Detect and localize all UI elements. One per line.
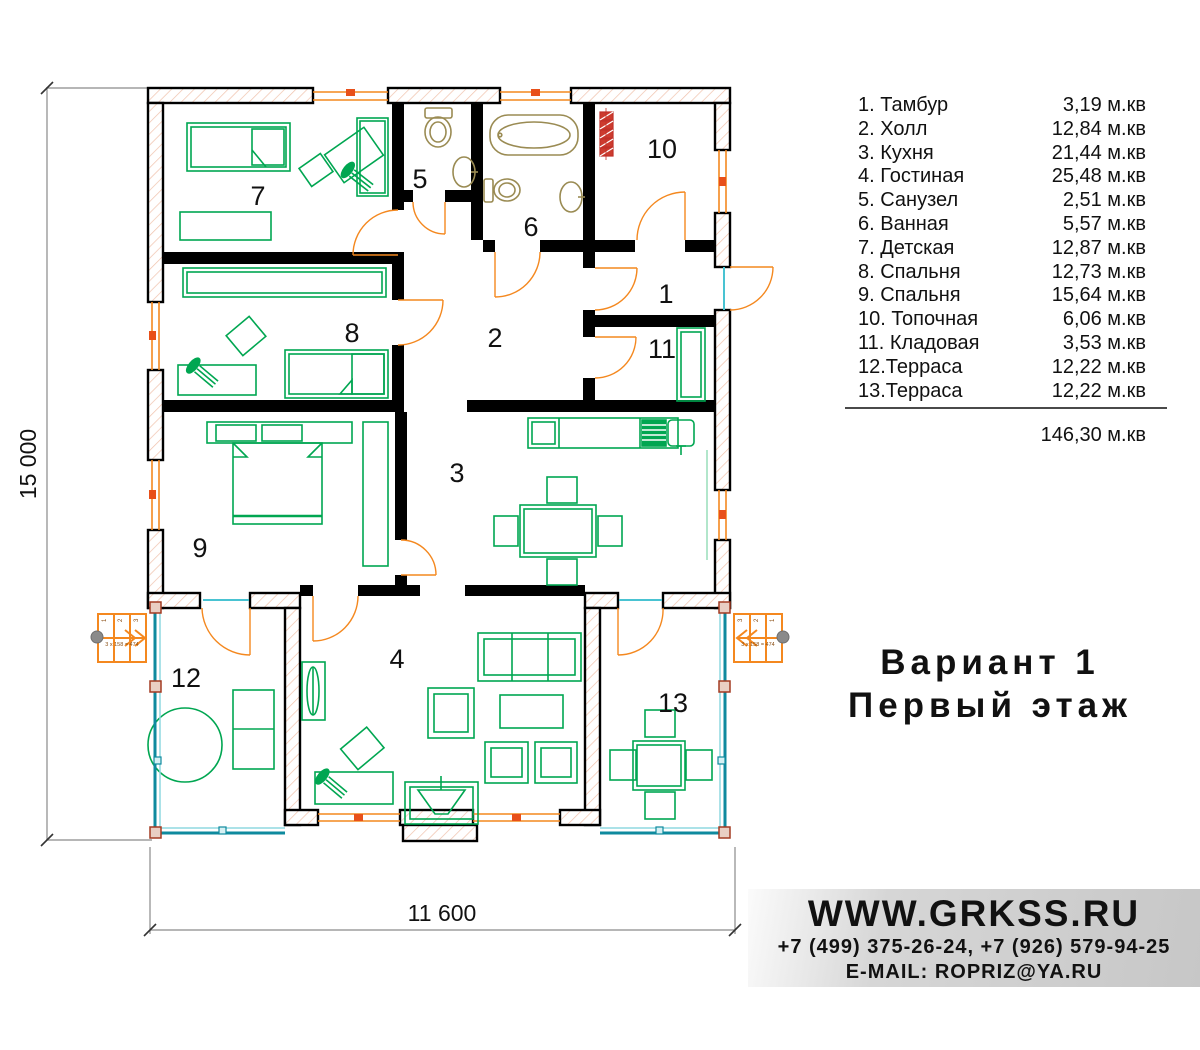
terrace-railings bbox=[150, 602, 730, 838]
room-name: 6. Ванная bbox=[858, 213, 949, 237]
room-name: 8. Спальня bbox=[858, 261, 961, 285]
website-text: WWW.GRKSS.RU bbox=[808, 893, 1140, 935]
stair-step: 2 bbox=[754, 618, 760, 622]
stove-icon bbox=[642, 420, 666, 446]
legend-row: 6. Ванная5,57 м.кв bbox=[858, 213, 1146, 237]
terrace13-furniture bbox=[610, 710, 712, 819]
room-area: 12,84 м.кв bbox=[1052, 118, 1146, 142]
room-area: 2,51 м.кв bbox=[1063, 189, 1146, 213]
room-name: 13.Терраса bbox=[858, 380, 963, 404]
variant-title-line1: Вариант 1 bbox=[790, 641, 1190, 684]
room-number-5: 5 bbox=[412, 164, 427, 194]
interior-walls bbox=[163, 103, 715, 596]
stair-step: 2 bbox=[118, 618, 124, 622]
railing-posts bbox=[150, 602, 730, 838]
room-area: 12,22 м.кв bbox=[1052, 380, 1146, 404]
room-area: 5,57 м.кв bbox=[1063, 213, 1146, 237]
bathtub-icon bbox=[490, 115, 578, 155]
legend-row: 1. Тамбур3,19 м.кв bbox=[858, 94, 1146, 118]
room-number-7: 7 bbox=[250, 181, 265, 211]
toilet-icon bbox=[484, 179, 493, 202]
stair-step: 1 bbox=[770, 618, 776, 622]
exterior-walls bbox=[148, 88, 730, 841]
variant-title-line2: Первый этаж bbox=[790, 684, 1190, 727]
room11-furniture bbox=[677, 328, 705, 401]
legend-row: 9. Спальня15,64 м.кв bbox=[858, 284, 1146, 308]
stair-step: 3 bbox=[738, 618, 744, 622]
variant-title: Вариант 1 Первый этаж bbox=[790, 641, 1190, 727]
room-number-9: 9 bbox=[192, 533, 207, 563]
legend-row: 12.Терраса12,22 м.кв bbox=[858, 356, 1146, 380]
email-text: E-MAIL: ROPRIZ@YA.RU bbox=[846, 960, 1103, 984]
sofa-icon bbox=[478, 633, 581, 681]
stair-note-left: 3 x 158 = 474 bbox=[105, 642, 139, 648]
room-number-1: 1 bbox=[658, 279, 673, 309]
room7-furniture bbox=[180, 118, 388, 240]
room-number-8: 8 bbox=[344, 318, 359, 348]
legend-row: 13.Терраса12,22 м.кв bbox=[858, 380, 1146, 404]
stair-step: 1 bbox=[102, 618, 108, 622]
legend-row: 5. Санузел2,51 м.кв bbox=[858, 189, 1146, 213]
room-area: 25,48 м.кв bbox=[1052, 165, 1146, 189]
legend-divider bbox=[845, 407, 1167, 409]
room-number-6: 6 bbox=[523, 212, 538, 242]
legend-row: 2. Холл12,84 м.кв bbox=[858, 118, 1146, 142]
stair-step: 3 bbox=[134, 618, 140, 622]
dimension-width-label: 11 600 bbox=[408, 900, 477, 926]
room-name: 2. Холл bbox=[858, 118, 927, 142]
legend-row: 8. Спальня12,73 м.кв bbox=[858, 261, 1146, 285]
room-number-2: 2 bbox=[487, 323, 502, 353]
legend-row: 10. Топочная6,06 м.кв bbox=[858, 308, 1146, 332]
kitchen-furniture bbox=[494, 418, 707, 585]
legend-row: 4. Гостиная25,48 м.кв bbox=[858, 165, 1146, 189]
room-name: 9. Спальня bbox=[858, 284, 961, 308]
room-name: 3. Кухня bbox=[858, 142, 934, 166]
boiler-icon bbox=[600, 108, 613, 160]
room-area: 12,22 м.кв bbox=[1052, 356, 1146, 380]
room-name: 7. Детская bbox=[858, 237, 954, 261]
room-name: 10. Топочная bbox=[858, 308, 978, 332]
room4-furniture bbox=[302, 633, 581, 824]
room-number-3: 3 bbox=[449, 458, 464, 488]
room-number-4: 4 bbox=[389, 644, 404, 674]
room-name: 1. Тамбур bbox=[858, 94, 948, 118]
room-area: 3,19 м.кв bbox=[1063, 94, 1146, 118]
room-name: 12.Терраса bbox=[858, 356, 963, 380]
kitchen-sink-icon bbox=[668, 420, 694, 446]
computer-icon bbox=[184, 356, 221, 391]
dimension-height-label: 15 000 bbox=[15, 429, 41, 499]
room-name: 5. Санузел bbox=[858, 189, 958, 213]
room9-furniture bbox=[207, 422, 388, 566]
total-area: 146,30 м.кв bbox=[858, 424, 1146, 447]
room-area: 6,06 м.кв bbox=[1063, 308, 1146, 332]
stair-note-right: 3 x 158 = 474 bbox=[741, 642, 775, 648]
legend-row: 7. Детская12,87 м.кв bbox=[858, 237, 1146, 261]
room-number-11: 11 bbox=[648, 334, 676, 364]
room-name: 11. Кладовая bbox=[858, 332, 979, 356]
room-area: 12,73 м.кв bbox=[1052, 261, 1146, 285]
legend-row: 11. Кладовая3,53 м.кв bbox=[858, 332, 1146, 356]
legend-row: 3. Кухня21,44 м.кв bbox=[858, 142, 1146, 166]
room-legend: 1. Тамбур3,19 м.кв 2. Холл12,84 м.кв 3. … bbox=[858, 94, 1146, 403]
room-area: 15,64 м.кв bbox=[1052, 284, 1146, 308]
room-number-10: 10 bbox=[647, 134, 677, 164]
phone-text: +7 (499) 375-26-24, +7 (926) 579-94-25 bbox=[778, 935, 1171, 960]
room-name: 4. Гостиная bbox=[858, 165, 964, 189]
room-number-12: 12 bbox=[171, 663, 201, 693]
room-area: 12,87 м.кв bbox=[1052, 237, 1146, 261]
room-number-13: 13 bbox=[658, 688, 688, 718]
windows bbox=[149, 89, 726, 821]
terrace12-furniture bbox=[148, 690, 274, 782]
floor-plan-page: 15 000 11 600 bbox=[0, 0, 1200, 1050]
contact-banner: WWW.GRKSS.RU +7 (499) 375-26-24, +7 (926… bbox=[748, 889, 1200, 987]
room-area: 21,44 м.кв bbox=[1052, 142, 1146, 166]
room-area: 3,53 м.кв bbox=[1063, 332, 1146, 356]
